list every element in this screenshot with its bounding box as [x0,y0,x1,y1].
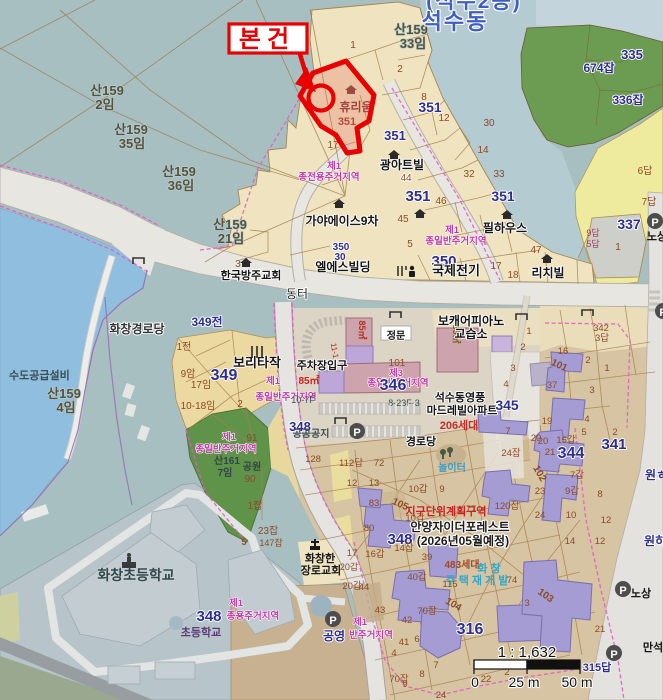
svg-text:산159: 산159 [213,217,247,232]
svg-text:83: 83 [369,498,380,509]
svg-text:1: 1 [615,242,621,253]
svg-text:5: 5 [581,427,586,438]
svg-text:3: 3 [589,385,594,396]
svg-text:4임: 4임 [56,400,75,415]
svg-text:4: 4 [584,414,589,425]
svg-text:12: 12 [438,113,450,124]
svg-text:놀이터: 놀이터 [438,461,466,474]
svg-text:15갑: 15갑 [556,434,576,446]
svg-text:9: 9 [439,484,444,495]
svg-text:6답: 6답 [638,165,653,177]
svg-text:37: 37 [547,380,558,391]
svg-text:21임: 21임 [218,231,244,246]
svg-text:23: 23 [535,486,546,497]
svg-text:10-7F: 10-7F [291,395,315,405]
svg-text:공영: 공영 [323,628,345,643]
svg-text:335: 335 [621,47,643,62]
svg-text:P: P [659,307,663,319]
svg-text:P: P [329,615,336,627]
svg-text:14: 14 [565,536,576,547]
svg-text:80: 80 [364,523,375,534]
svg-text:마드레빌아파트: 마드레빌아파트 [427,403,498,417]
svg-text:P: P [619,585,626,597]
svg-text:316: 316 [457,621,484,638]
svg-text:674잡: 674잡 [583,60,614,75]
svg-text:17: 17 [490,261,502,272]
svg-text:국제전기: 국제전기 [432,263,480,278]
svg-text:85㎡: 85㎡ [357,320,368,339]
svg-text:101: 101 [389,358,406,369]
svg-text:17임: 17임 [191,378,211,391]
svg-text:경로당: 경로당 [406,434,436,448]
svg-text:리치빌: 리치빌 [531,265,564,280]
svg-text:17: 17 [347,548,358,559]
svg-text:필하우스: 필하우스 [483,220,527,235]
svg-text:206세대: 206세대 [440,418,479,432]
svg-text:화창경로당: 화창경로당 [109,321,164,336]
svg-text:72: 72 [374,458,385,469]
svg-text:10갑: 10갑 [405,512,425,524]
svg-text:315답: 315답 [583,660,611,674]
svg-text:보캐어피아노: 보캐어피아노 [438,313,504,328]
svg-text:3: 3 [510,363,515,374]
svg-text:115: 115 [442,579,457,590]
svg-text:2: 2 [612,427,617,438]
svg-text:P: P [610,649,617,661]
svg-text:8-23F-3: 8-23F-3 [388,398,420,408]
svg-text:3답: 3답 [595,332,609,344]
svg-text:2: 2 [585,355,590,366]
svg-text:제1: 제1 [266,375,281,387]
svg-text:장로교회: 장로교회 [301,563,341,577]
svg-text:(2026년05월예정): (2026년05월예정) [417,533,509,548]
svg-text:노상: 노상 [647,229,663,243]
svg-text:광아트빌: 광아트빌 [380,157,424,172]
svg-text:정문: 정문 [387,329,405,342]
svg-text:9갑: 9갑 [565,485,579,497]
svg-text:42: 42 [402,615,413,626]
svg-text:원히: 원히 [644,533,663,548]
svg-text:47: 47 [530,245,542,256]
svg-text:19: 19 [542,416,553,427]
svg-text:20갑: 20갑 [340,561,358,572]
svg-text:9답: 9답 [586,227,599,238]
svg-text:14: 14 [477,145,489,156]
svg-text:91: 91 [246,433,258,444]
svg-text:45: 45 [397,214,409,225]
svg-text:석수동: 석수동 [422,9,489,34]
svg-text:주차장입구: 주차장입구 [297,358,348,372]
svg-text:10: 10 [566,510,577,521]
svg-text:120잡: 120잡 [495,500,520,512]
svg-text:4: 4 [391,648,396,659]
svg-text:1: 1 [350,40,356,51]
svg-text:공공공지: 공공공지 [293,427,330,440]
svg-text:가야에이스9차: 가야에이스9차 [306,213,379,228]
svg-text:35임: 35임 [119,136,145,151]
svg-text:12: 12 [595,536,606,547]
svg-text:제1: 제1 [353,616,368,628]
svg-text:P: P [353,427,360,439]
svg-text:16갑: 16갑 [365,548,385,560]
svg-text:43: 43 [375,605,386,616]
svg-text:147잡: 147잡 [259,537,282,548]
svg-text:345: 345 [495,397,519,413]
svg-text:77: 77 [466,504,477,515]
svg-text:33: 33 [493,169,505,180]
svg-text:1전: 1전 [177,341,192,353]
svg-text:종일반주거지역: 종일반주거지역 [195,443,256,455]
svg-text:반주거지역: 반주거지역 [349,629,393,641]
svg-text:33임: 33임 [400,36,426,51]
svg-text:제1: 제1 [229,597,244,609]
svg-text:18: 18 [507,270,519,281]
svg-text:본건: 본건 [239,26,295,53]
svg-text:16: 16 [558,346,569,357]
svg-text:4: 4 [503,379,508,390]
svg-text:7답: 7답 [642,196,657,208]
svg-text:40갑: 40갑 [407,571,427,583]
svg-text:5: 5 [241,537,246,547]
svg-text:112답: 112답 [339,457,363,469]
svg-text:동터: 동터 [286,287,308,301]
svg-text:50 m: 50 m [561,674,592,690]
svg-text:교습소: 교습소 [454,327,487,341]
svg-text:8: 8 [421,92,427,103]
svg-text:483세대: 483세대 [444,558,479,571]
svg-text:제1: 제1 [445,224,460,236]
svg-text:산159: 산159 [90,83,124,98]
svg-text:21: 21 [545,447,556,458]
svg-text:P: P [651,217,658,229]
svg-text:2: 2 [397,64,403,75]
svg-text:산159: 산159 [114,122,148,137]
svg-text:346: 346 [380,377,407,394]
svg-text:25 m: 25 m [508,674,539,690]
svg-text:1: 1 [604,363,609,374]
svg-text:24: 24 [436,690,447,700]
svg-text:7임: 7임 [218,466,233,479]
svg-text:21: 21 [595,624,606,635]
svg-text:7: 7 [433,660,438,671]
svg-text:349전: 349전 [191,314,222,329]
svg-text:44: 44 [359,582,370,593]
svg-text:수도공급설비: 수도공급설비 [9,368,70,382]
svg-text:23잡: 23잡 [258,525,278,537]
svg-text:85㎡: 85㎡ [298,374,319,387]
svg-text:128: 128 [305,454,321,465]
svg-text:30: 30 [483,118,495,129]
svg-text:공원: 공원 [243,460,261,473]
svg-text:노상: 노상 [631,586,651,600]
svg-text:2: 2 [520,342,525,353]
svg-text:44: 44 [400,173,412,184]
svg-text:2임: 2임 [95,97,114,112]
svg-text:39: 39 [422,552,433,563]
svg-text:8: 8 [597,489,602,500]
svg-text:22: 22 [481,674,492,685]
svg-text:32: 32 [463,169,475,180]
svg-text:화창한: 화창한 [305,551,335,565]
svg-text:3: 3 [235,259,241,270]
svg-text:24: 24 [535,510,546,521]
svg-text:제1: 제1 [327,160,342,172]
svg-text:0: 0 [471,674,479,690]
svg-text:2: 2 [237,399,243,410]
svg-text:한국방주교회: 한국방주교회 [221,268,282,282]
svg-text:종전용주거지역: 종전용주거지역 [298,171,359,183]
svg-text:5: 5 [407,239,413,250]
svg-text:41: 41 [399,637,410,648]
svg-text:종일반주거지역: 종일반주거지역 [425,235,486,247]
svg-text:화창초등학교: 화창초등학교 [97,567,174,583]
svg-text:70잡: 70잡 [417,605,437,617]
svg-text:석수동영풍: 석수동영풍 [435,390,486,404]
svg-text:6: 6 [414,634,419,645]
svg-text:제1: 제1 [222,431,237,443]
svg-text:10갑: 10갑 [408,483,428,495]
svg-text:13: 13 [369,478,380,489]
svg-text:7갑: 7갑 [570,469,584,481]
svg-text:336잡: 336잡 [612,92,643,107]
svg-text:10-18임: 10-18임 [181,399,216,412]
svg-text:종용주거지역: 종용주거지역 [227,610,279,622]
svg-text:351: 351 [384,128,406,143]
svg-text:1 : 1,632: 1 : 1,632 [498,644,556,661]
svg-text:46: 46 [435,196,447,207]
svg-text:12: 12 [347,478,358,489]
svg-text:351: 351 [405,188,430,205]
svg-text:산159: 산159 [162,164,196,179]
svg-text:엘에스빌딩: 엘에스빌딩 [315,259,370,274]
svg-text:351: 351 [491,188,515,204]
svg-text:8: 8 [419,669,424,680]
svg-text:337: 337 [617,216,641,232]
svg-text:만석: 만석 [643,640,663,654]
svg-text:초등학교: 초등학교 [181,625,221,639]
svg-text:5답: 5답 [586,238,599,249]
svg-text:36임: 36임 [168,178,194,193]
svg-text:348: 348 [196,608,221,625]
svg-text:14잡: 14잡 [394,542,414,554]
svg-text:341: 341 [601,436,626,453]
svg-text:산161: 산161 [214,454,240,467]
svg-text:1잡: 1잡 [248,500,263,512]
svg-text:24잡: 24잡 [501,447,521,459]
svg-text:9: 9 [402,679,407,690]
svg-text:9암: 9암 [181,368,196,380]
svg-text:1: 1 [526,326,531,337]
svg-text:20: 20 [538,436,549,447]
svg-text:원ㅎ: 원ㅎ [645,468,663,482]
svg-text:344: 344 [558,445,585,462]
svg-text:90: 90 [244,474,256,485]
svg-text:3: 3 [524,598,529,609]
svg-text:산159: 산159 [47,386,81,401]
svg-text:12: 12 [601,515,612,526]
svg-text:화 창: 화 창 [477,561,500,575]
svg-text:7: 7 [505,426,510,437]
svg-text:안양자이더포레스트: 안양자이더포레스트 [410,519,509,534]
svg-text:74: 74 [507,575,518,586]
